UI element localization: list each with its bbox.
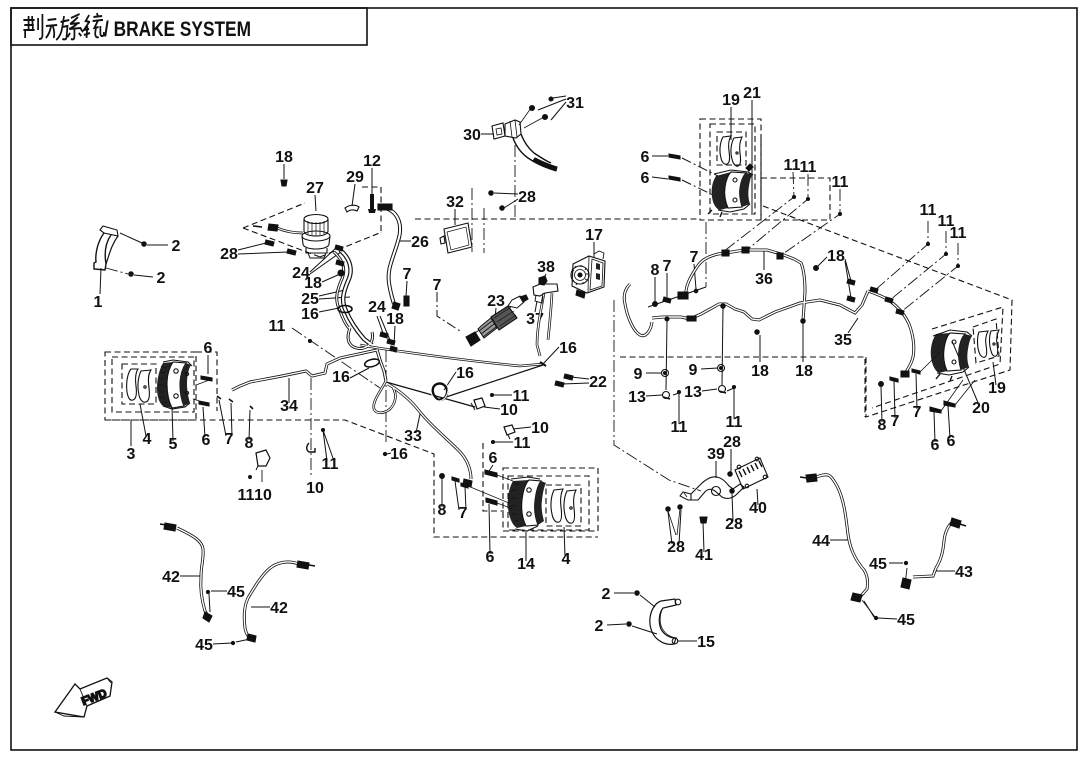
svg-text:7: 7 — [690, 249, 699, 266]
svg-text:45: 45 — [897, 612, 915, 629]
svg-text:32: 32 — [446, 194, 464, 211]
svg-text:11: 11 — [269, 318, 286, 335]
svg-text:11: 11 — [784, 157, 801, 174]
svg-text:2: 2 — [157, 270, 166, 287]
svg-text:8: 8 — [651, 262, 660, 279]
svg-text:30: 30 — [463, 127, 481, 144]
svg-text:39: 39 — [707, 446, 725, 463]
svg-text:16: 16 — [456, 365, 474, 382]
svg-text:16: 16 — [301, 306, 319, 323]
svg-text:4: 4 — [562, 551, 571, 568]
svg-text:25: 25 — [301, 291, 319, 308]
svg-text:45: 45 — [869, 556, 887, 573]
svg-text:44: 44 — [812, 533, 830, 550]
svg-text:16: 16 — [559, 340, 577, 357]
svg-text:11: 11 — [950, 225, 967, 242]
svg-text:18: 18 — [275, 149, 293, 166]
svg-text:6: 6 — [489, 450, 498, 467]
svg-text:26: 26 — [411, 234, 429, 251]
svg-text:7: 7 — [403, 266, 412, 283]
svg-text:17: 17 — [585, 227, 603, 244]
svg-text:19: 19 — [988, 380, 1006, 397]
svg-text:6: 6 — [641, 170, 650, 187]
svg-text:45: 45 — [195, 637, 213, 654]
svg-text:22: 22 — [589, 374, 607, 391]
svg-text:13: 13 — [684, 384, 702, 401]
svg-text:11: 11 — [832, 174, 849, 191]
svg-text:18: 18 — [795, 363, 813, 380]
svg-text:7: 7 — [433, 277, 442, 294]
svg-text:1: 1 — [94, 294, 103, 311]
svg-text:16: 16 — [390, 446, 408, 463]
svg-text:33: 33 — [404, 428, 422, 445]
svg-text:35: 35 — [834, 332, 852, 349]
svg-text:24: 24 — [292, 265, 310, 282]
svg-text:9: 9 — [634, 366, 643, 383]
svg-text:6: 6 — [947, 433, 956, 450]
svg-text:2: 2 — [602, 586, 611, 603]
svg-text:18: 18 — [386, 311, 404, 328]
svg-text:10: 10 — [254, 487, 272, 504]
svg-text:15: 15 — [697, 634, 715, 651]
svg-text:11: 11 — [513, 388, 530, 405]
svg-text:21: 21 — [743, 85, 761, 102]
svg-text:28: 28 — [667, 539, 685, 556]
svg-text:7: 7 — [663, 258, 672, 275]
svg-text:16: 16 — [332, 369, 350, 386]
svg-text:18: 18 — [827, 248, 845, 265]
svg-text:2: 2 — [595, 618, 604, 635]
svg-text:6: 6 — [204, 340, 213, 357]
svg-text:43: 43 — [955, 564, 973, 581]
svg-text:28: 28 — [723, 434, 741, 451]
svg-text:29: 29 — [346, 169, 364, 186]
svg-text:6: 6 — [202, 432, 211, 449]
svg-text:2: 2 — [172, 238, 181, 255]
svg-text:42: 42 — [270, 600, 288, 617]
svg-text:11: 11 — [322, 456, 339, 473]
svg-text:38: 38 — [537, 259, 555, 276]
svg-text:24: 24 — [368, 299, 386, 316]
svg-text:11: 11 — [238, 487, 255, 504]
svg-text:36: 36 — [755, 271, 773, 288]
svg-text:28: 28 — [220, 246, 238, 263]
svg-text:4: 4 — [143, 431, 152, 448]
svg-text:6: 6 — [641, 149, 650, 166]
svg-text:10: 10 — [531, 420, 549, 437]
svg-text:28: 28 — [518, 189, 536, 206]
svg-text:3: 3 — [127, 446, 136, 463]
svg-text:13: 13 — [628, 389, 646, 406]
svg-text:10: 10 — [306, 480, 324, 497]
svg-text:/ BRAKE SYSTEM: / BRAKE SYSTEM — [104, 17, 251, 41]
svg-text:28: 28 — [725, 516, 743, 533]
svg-text:12: 12 — [363, 153, 381, 170]
svg-text:11: 11 — [800, 159, 817, 176]
svg-text:31: 31 — [566, 95, 584, 112]
svg-text:19: 19 — [722, 92, 740, 109]
svg-text:23: 23 — [487, 293, 505, 310]
svg-text:45: 45 — [227, 584, 245, 601]
svg-text:11: 11 — [920, 202, 937, 219]
svg-text:42: 42 — [162, 569, 180, 586]
svg-text:9: 9 — [689, 362, 698, 379]
svg-text:27: 27 — [306, 180, 324, 197]
svg-text:11: 11 — [514, 435, 531, 452]
svg-text:18: 18 — [751, 363, 769, 380]
svg-text:20: 20 — [972, 400, 990, 417]
